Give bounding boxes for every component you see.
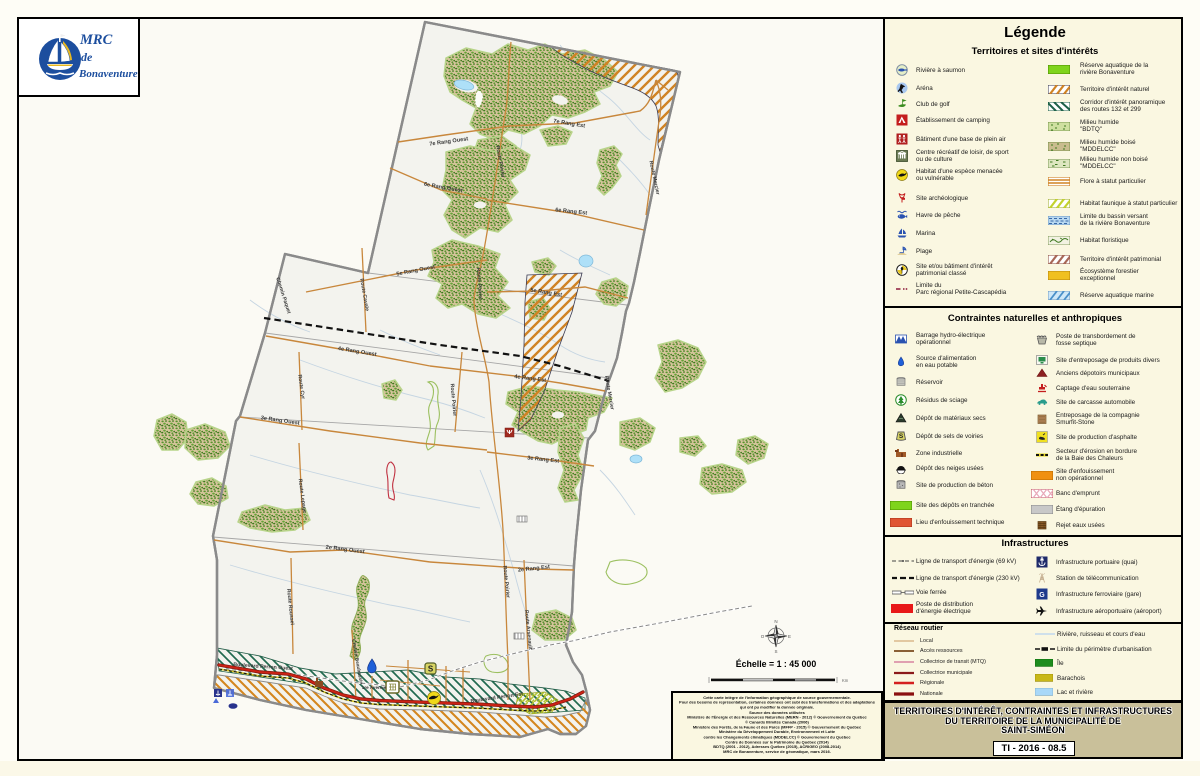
svg-text:S: S	[899, 433, 904, 440]
svg-text:Échelle = 1 : 45 000: Échelle = 1 : 45 000	[736, 659, 817, 669]
svg-text:E: E	[788, 634, 791, 639]
svg-text:S: S	[774, 649, 777, 654]
svg-text:1re Avenue: 1re Avenue	[362, 685, 387, 690]
svg-text:S: S	[428, 665, 434, 674]
svg-text:N: N	[774, 619, 777, 624]
svg-text:G: G	[1039, 592, 1045, 599]
svg-text:Km: Km	[842, 678, 849, 683]
svg-text:O: O	[761, 634, 765, 639]
